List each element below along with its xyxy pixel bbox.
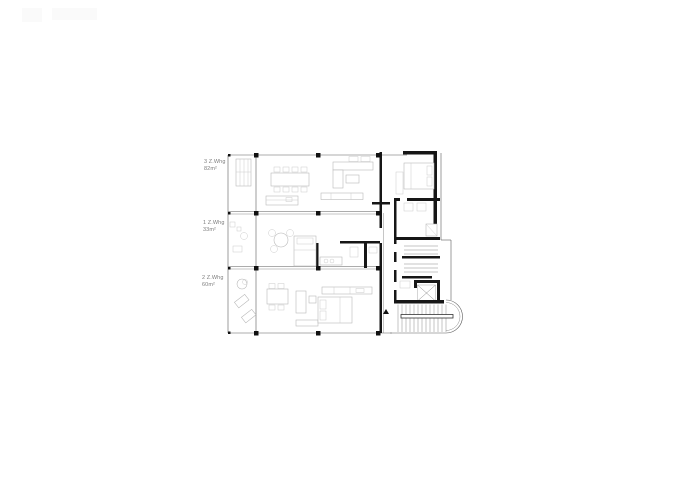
apartment-area: 60m² bbox=[202, 282, 223, 289]
elevator-shaft bbox=[414, 280, 440, 303]
apartment-label-2zwhg: 2 Z.Whg 60m² bbox=[202, 275, 223, 289]
apartment-label-1zwhg: 1 Z.Whg 33m² bbox=[203, 220, 224, 234]
apartment-name: 2 Z.Whg bbox=[202, 275, 223, 281]
apartment-name: 3 Z.Whg bbox=[204, 159, 225, 165]
apartment-1zwhg bbox=[269, 230, 378, 267]
apartment-label-3zwhg: 3 Z.Whg 82m² bbox=[204, 159, 225, 173]
staircase bbox=[390, 300, 463, 333]
faint-print-marks bbox=[22, 8, 97, 22]
apartment-area: 82m² bbox=[204, 166, 225, 173]
service-rooms bbox=[400, 203, 438, 288]
apartment-3zwhg bbox=[266, 157, 434, 206]
balcony-strip bbox=[230, 159, 256, 323]
apartment-area: 33m² bbox=[203, 227, 224, 234]
stair-landing-rail bbox=[401, 315, 453, 319]
floor-plan-drawing bbox=[0, 0, 700, 495]
apartment-2zwhg bbox=[267, 284, 372, 327]
entrance-marker-icon bbox=[383, 309, 389, 314]
apartment-name: 1 Z.Whg bbox=[203, 220, 224, 226]
floor-plan-sheet: 3 Z.Whg 82m² 1 Z.Whg 33m² 2 Z.Whg 60m² bbox=[0, 0, 700, 495]
